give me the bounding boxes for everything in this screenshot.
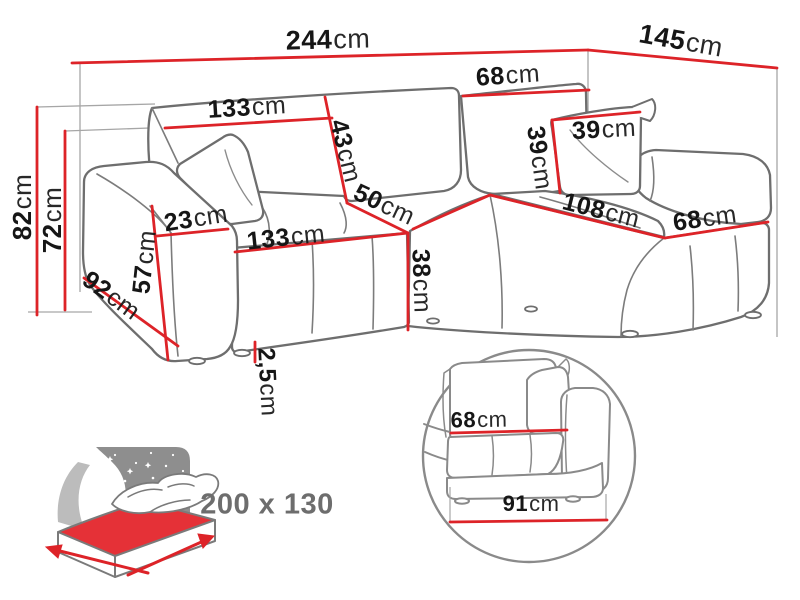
sleeping-function-icon (46, 447, 218, 577)
bed-icon (58, 474, 218, 577)
detail-inset-circle (423, 350, 635, 562)
seat-front-left (232, 233, 409, 352)
dim-line-inset-91 (450, 520, 607, 522)
sofa-technical-drawing (0, 0, 800, 600)
dim-line-145 (588, 50, 777, 68)
moon-crescent (58, 462, 90, 530)
dim-line-244 (72, 50, 588, 63)
dimension-diagram: 244cm145cm82cm72cm133cm43cm68cm39cm39cm2… (0, 0, 800, 600)
